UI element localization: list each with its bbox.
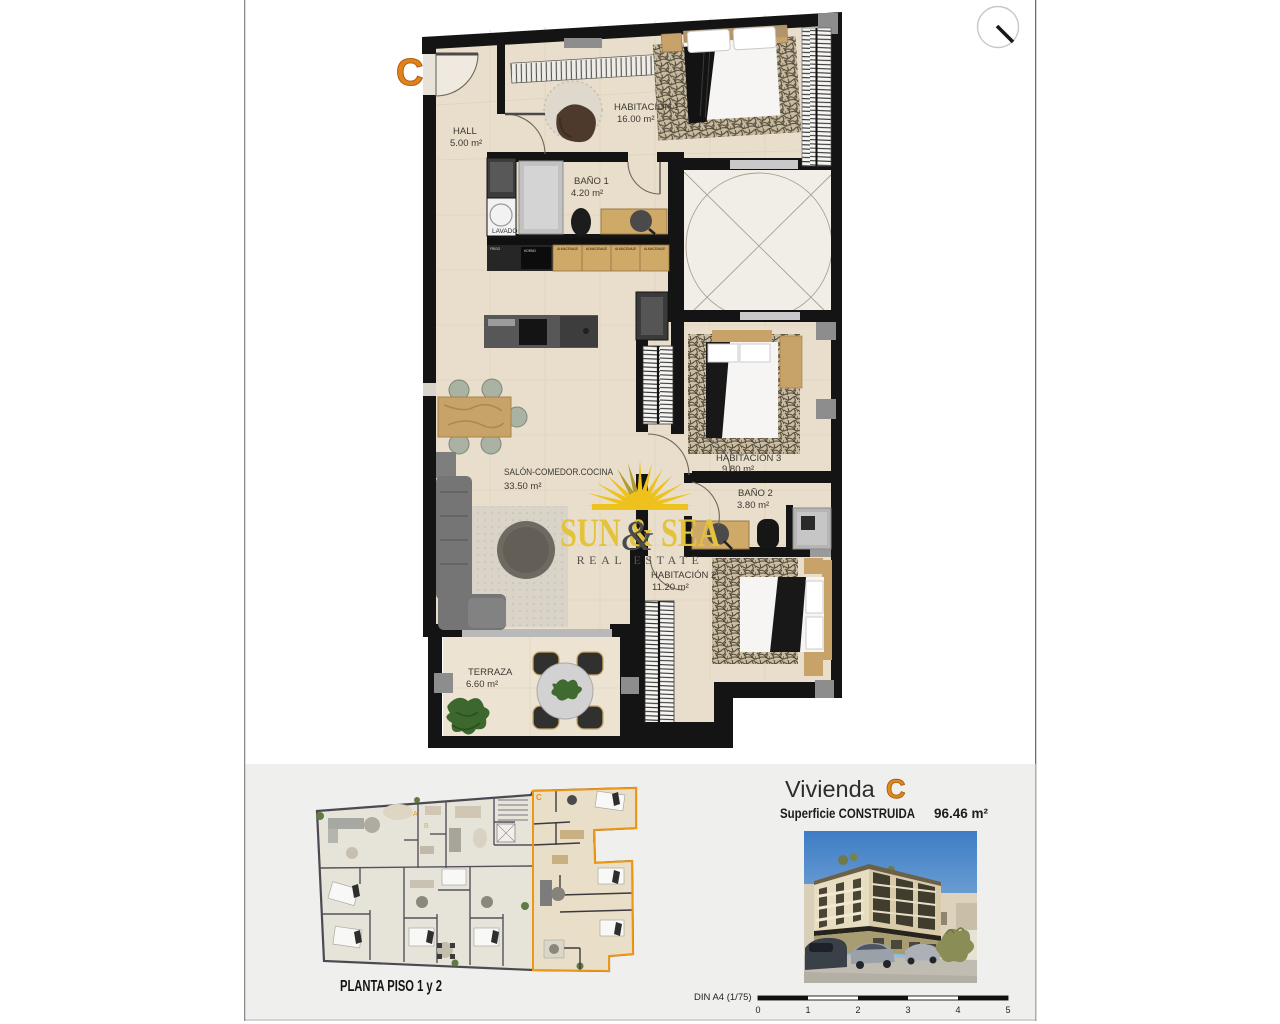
svg-text:9.80 m²: 9.80 m² bbox=[722, 464, 754, 475]
svg-text:HABITACIÓN 3: HABITACIÓN 3 bbox=[716, 453, 781, 464]
svg-text:ALMACENAJE: ALMACENAJE bbox=[644, 247, 665, 251]
svg-text:C: C bbox=[396, 52, 423, 94]
svg-text:1: 1 bbox=[805, 1005, 810, 1015]
svg-text:ALMACENAJE: ALMACENAJE bbox=[615, 247, 636, 251]
svg-text:DIN A4 (1/75): DIN A4 (1/75) bbox=[694, 992, 752, 1003]
svg-text:LAVADO: LAVADO bbox=[492, 228, 517, 235]
svg-text:0: 0 bbox=[755, 1005, 760, 1015]
svg-text:4.20 m²: 4.20 m² bbox=[571, 188, 603, 199]
svg-text:BAÑO 2: BAÑO 2 bbox=[738, 488, 773, 499]
svg-text:ALMACENAJE: ALMACENAJE bbox=[586, 247, 607, 251]
svg-text:HABITACIÓN 2: HABITACIÓN 2 bbox=[651, 570, 716, 581]
svg-text:5.00 m²: 5.00 m² bbox=[450, 138, 482, 149]
svg-text:3.80 m²: 3.80 m² bbox=[737, 500, 769, 511]
svg-text:PLANTA PISO 1 y 2: PLANTA PISO 1 y 2 bbox=[340, 978, 442, 995]
svg-text:SALÓN-COMEDOR.COCINA: SALÓN-COMEDOR.COCINA bbox=[504, 467, 614, 478]
svg-text:C: C bbox=[536, 793, 542, 802]
svg-text:11.20 m²: 11.20 m² bbox=[652, 582, 689, 593]
svg-text:3: 3 bbox=[905, 1005, 910, 1015]
svg-text:HALL: HALL bbox=[453, 126, 477, 137]
svg-text:16.00 m²: 16.00 m² bbox=[617, 114, 655, 125]
svg-text:Superficie CONSTRUIDA: Superficie CONSTRUIDA bbox=[780, 806, 915, 821]
svg-text:HABITACIÓN 1: HABITACIÓN 1 bbox=[614, 102, 679, 113]
svg-text:96.46 m²: 96.46 m² bbox=[934, 806, 989, 821]
svg-text:REAL ESTATE: REAL ESTATE bbox=[577, 553, 704, 567]
svg-text:BAÑO 1: BAÑO 1 bbox=[574, 176, 609, 187]
svg-text:A: A bbox=[413, 811, 418, 818]
svg-text:C: C bbox=[886, 774, 906, 804]
svg-text:B: B bbox=[424, 823, 429, 830]
svg-text:FRIGO: FRIGO bbox=[490, 247, 501, 251]
svg-text:Vivienda: Vivienda bbox=[785, 776, 876, 802]
svg-text:4: 4 bbox=[955, 1005, 960, 1015]
svg-text:TERRAZA: TERRAZA bbox=[468, 667, 513, 678]
svg-text:2: 2 bbox=[855, 1005, 860, 1015]
svg-text:33.50 m²: 33.50 m² bbox=[504, 481, 542, 492]
svg-text:6.60 m²: 6.60 m² bbox=[466, 679, 498, 690]
svg-text:ALMACENAJE: ALMACENAJE bbox=[557, 247, 578, 251]
svg-text:HORNO: HORNO bbox=[524, 249, 536, 253]
svg-text:5: 5 bbox=[1005, 1005, 1010, 1015]
